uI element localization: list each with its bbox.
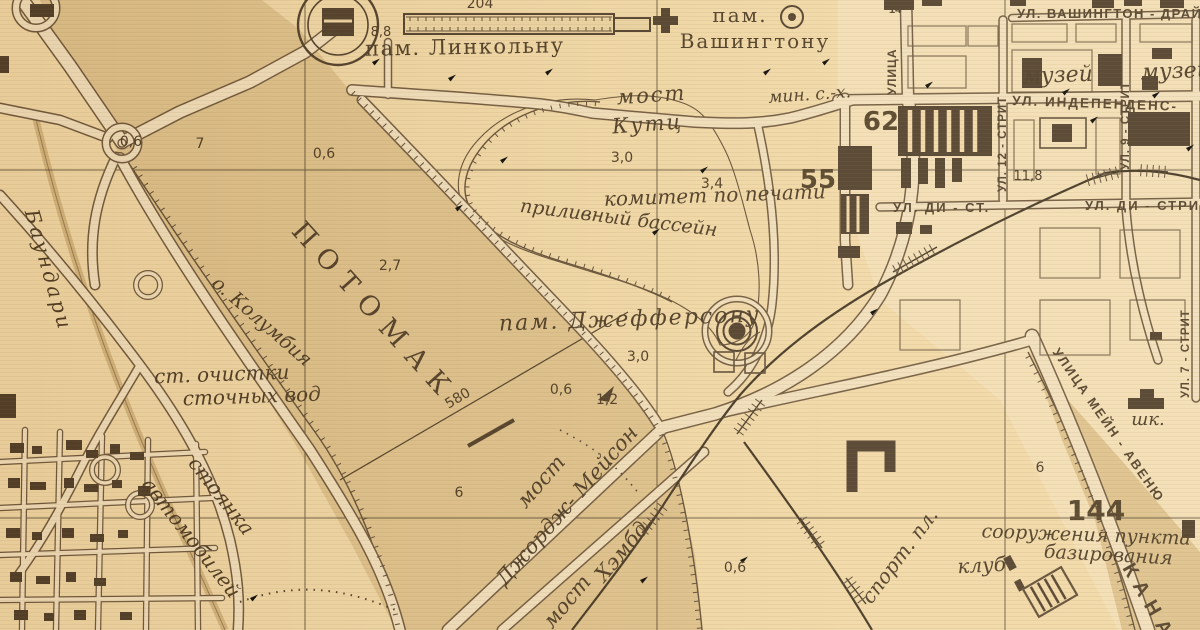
num-depth-06-c: 0,6 [550, 382, 572, 398]
label-museum-b: музей [1140, 58, 1200, 85]
label-kutz-bridge-line1: мост [616, 81, 687, 110]
label-museum-a: музей [1022, 62, 1093, 89]
num-depth-27: 2,7 [379, 258, 401, 274]
street-d-st-short: УЛ. ДИ - СТ. [893, 200, 990, 215]
label-kutz-bridge-line2: Кутц [610, 110, 683, 139]
num-depth-12: 1,2 [596, 392, 618, 408]
street-14th-num: 14 [889, 4, 902, 16]
num-depth-06-b: 0,6 [313, 146, 335, 162]
grid-num-144: 144 [1067, 494, 1125, 527]
street-12th: УЛ. 12 - СТРИТ [997, 96, 1009, 192]
num-height-118: 11,8 [1014, 169, 1043, 184]
label-washington-monument-line1: пам. [712, 3, 767, 27]
num-depth-34: 3,4 [701, 176, 723, 192]
street-7th: УЛ. 7 - СТРИТ [1180, 309, 1192, 398]
street-9th: УЛ. 9 - СТРИТ [1120, 81, 1132, 170]
num-204-partial: 204 [467, 0, 494, 12]
grid-num-62: 62 [863, 107, 899, 137]
street-d-st-long: УЛ. ДИ - СТРИТ [1085, 198, 1200, 213]
label-club: клуб [957, 552, 1007, 579]
num-6-b: 6 [1036, 460, 1045, 476]
engraving-building [838, 146, 872, 190]
street-washington-drive: УЛ. ВАШИНГТОН - ДРАЙВ [1017, 6, 1200, 21]
num-depth-06-d: 0,6 [724, 560, 746, 576]
label-lincoln-memorial: пам. Линкольну [365, 33, 565, 60]
street-14th-name: УЛИЦА [885, 49, 899, 95]
num-depth-30-a: 3,0 [611, 150, 633, 166]
map-canvas[interactable]: пам. Линкольну пам. Вашингтону мост Кутц… [0, 0, 1200, 630]
label-washington-monument-line2: Вашингтону [680, 29, 831, 53]
label-school: шк. [1131, 409, 1165, 430]
label-sewage-plant-line2: сточных вод [182, 382, 321, 411]
num-height-88: 8,8 [371, 25, 392, 40]
num-depth-06-a: 0,6 [120, 134, 142, 150]
grid-num-55: 55 [800, 165, 836, 195]
num-depth-30-b: 3,0 [627, 349, 649, 365]
num-6-a: 6 [455, 485, 464, 501]
num-7: 7 [196, 136, 205, 152]
topo-map-svg: пам. Линкольну пам. Вашингтону мост Кутц… [0, 0, 1200, 630]
